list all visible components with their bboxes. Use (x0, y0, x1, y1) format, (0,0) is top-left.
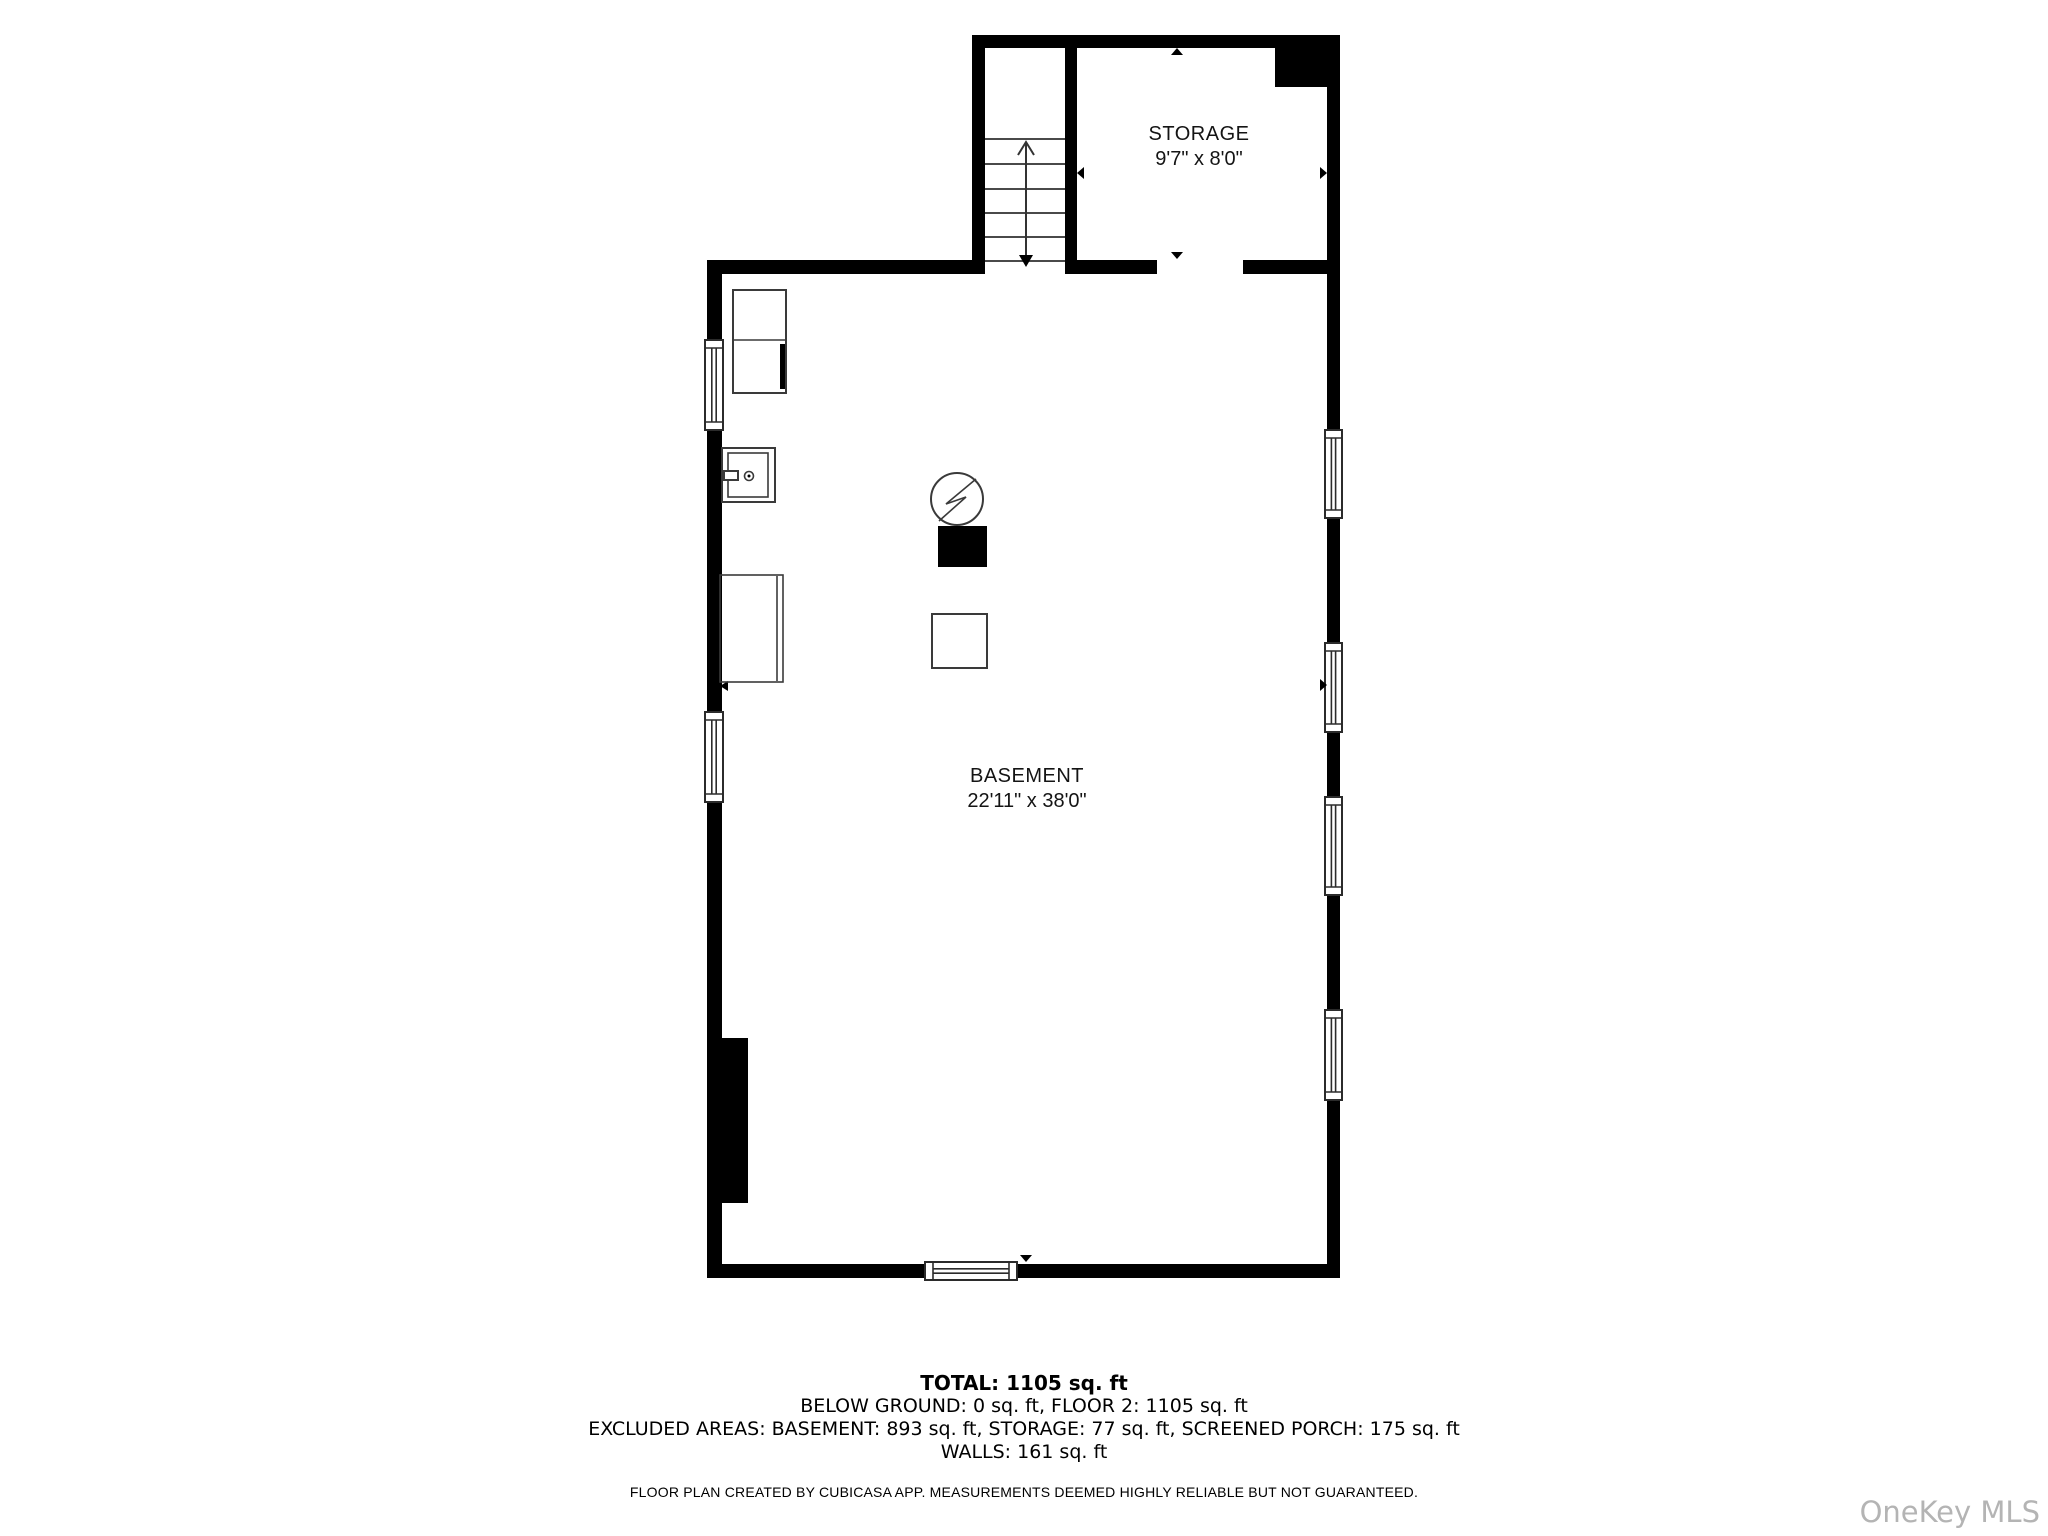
basement-room-label: BASEMENT (970, 765, 1084, 787)
water-heater-circle (931, 473, 983, 525)
window (705, 712, 723, 802)
floor-plan-drawing: STORAGE 9'7" x 8'0" BASEMENT 22'11" x 38… (0, 0, 2048, 1536)
basement-room-dimensions: 22'11" x 38'0" (967, 790, 1086, 812)
window-frame (1325, 430, 1342, 518)
appliance-outline (733, 290, 786, 393)
window (1325, 430, 1342, 518)
fixtures (720, 290, 987, 682)
staircase (985, 139, 1065, 267)
window (1325, 797, 1342, 895)
storage-room-dimensions: 9'7" x 8'0" (1155, 148, 1242, 170)
door-opening-arrow-icon-right (1320, 167, 1327, 179)
area-summary: TOTAL: 1105 sq. ft BELOW GROUND: 0 sq. f… (0, 1372, 2048, 1464)
water-heater-circle-bolt-icon (931, 473, 983, 525)
window (705, 340, 723, 430)
washer-dryer-icon (733, 290, 786, 393)
white-equipment-box-icon (932, 614, 987, 668)
window-frame (1325, 1010, 1342, 1100)
window (925, 1262, 1017, 1280)
wall-storage-bottom-left (1065, 260, 1157, 274)
onekey-mls-watermark: OneKey MLS (1860, 1495, 2040, 1529)
floor-plan-page: STORAGE 9'7" x 8'0" BASEMENT 22'11" x 38… (0, 0, 2048, 1536)
storage-corner-block (1275, 48, 1327, 87)
chimney-block (707, 1038, 748, 1203)
room-labels: STORAGE 9'7" x 8'0" BASEMENT 22'11" x 38… (967, 123, 1249, 812)
sink-drain-dot (748, 475, 751, 478)
wall-stair-storage-divider (1065, 48, 1077, 274)
window-frame (925, 1262, 1017, 1280)
walls (707, 35, 1340, 1278)
window (1325, 1010, 1342, 1100)
door-opening-arrow-icon-left (1077, 167, 1084, 179)
utility-sink-icon (722, 448, 775, 502)
door-leaf (720, 575, 783, 682)
opening-markers (720, 48, 1327, 1262)
excluded-areas-text: EXCLUDED AREAS: BASEMENT: 893 sq. ft, ST… (0, 1418, 2048, 1441)
window-frame (1325, 797, 1342, 895)
window-frame (705, 712, 723, 802)
appliance-handle (780, 344, 785, 389)
wall-bottom (707, 1264, 1340, 1278)
door-opening-arrow-icon-down (1171, 252, 1183, 259)
left-wall-door (720, 575, 783, 682)
window-frame (705, 340, 723, 430)
sink-faucet (724, 471, 738, 480)
total-area-text: TOTAL: 1105 sq. ft (0, 1372, 2048, 1395)
door-opening-arrow-icon-up (1171, 48, 1183, 55)
wall-basement-top (707, 260, 985, 274)
disclaimer-text: FLOOR PLAN CREATED BY CUBICASA APP. MEAS… (0, 1484, 2048, 1500)
walls-area-text: WALLS: 161 sq. ft (0, 1441, 2048, 1464)
stairs-up-arrow-icon (1018, 142, 1034, 267)
wall-storage-bottom-right (1243, 260, 1327, 274)
window (1325, 643, 1342, 732)
door-opening-arrow-icon-bottom-wall (1020, 1255, 1032, 1262)
wall-stair-left (972, 35, 985, 272)
storage-room-label: STORAGE (1149, 123, 1250, 145)
wall-top (972, 35, 1340, 48)
black-equipment-box-icon (938, 526, 987, 567)
window-frame (1325, 643, 1342, 732)
below-ground-floor2-text: BELOW GROUND: 0 sq. ft, FLOOR 2: 1105 sq… (0, 1395, 2048, 1418)
